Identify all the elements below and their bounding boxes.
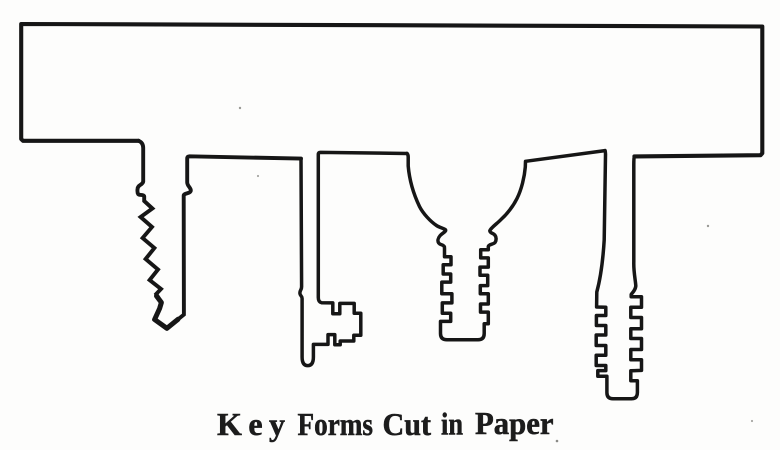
svg-text:Forms: Forms: [298, 406, 374, 442]
svg-text:Cut: Cut: [383, 406, 432, 442]
svg-text:Paper: Paper: [475, 405, 554, 441]
svg-text:in: in: [441, 405, 463, 441]
svg-text:Key: Key: [217, 406, 285, 442]
